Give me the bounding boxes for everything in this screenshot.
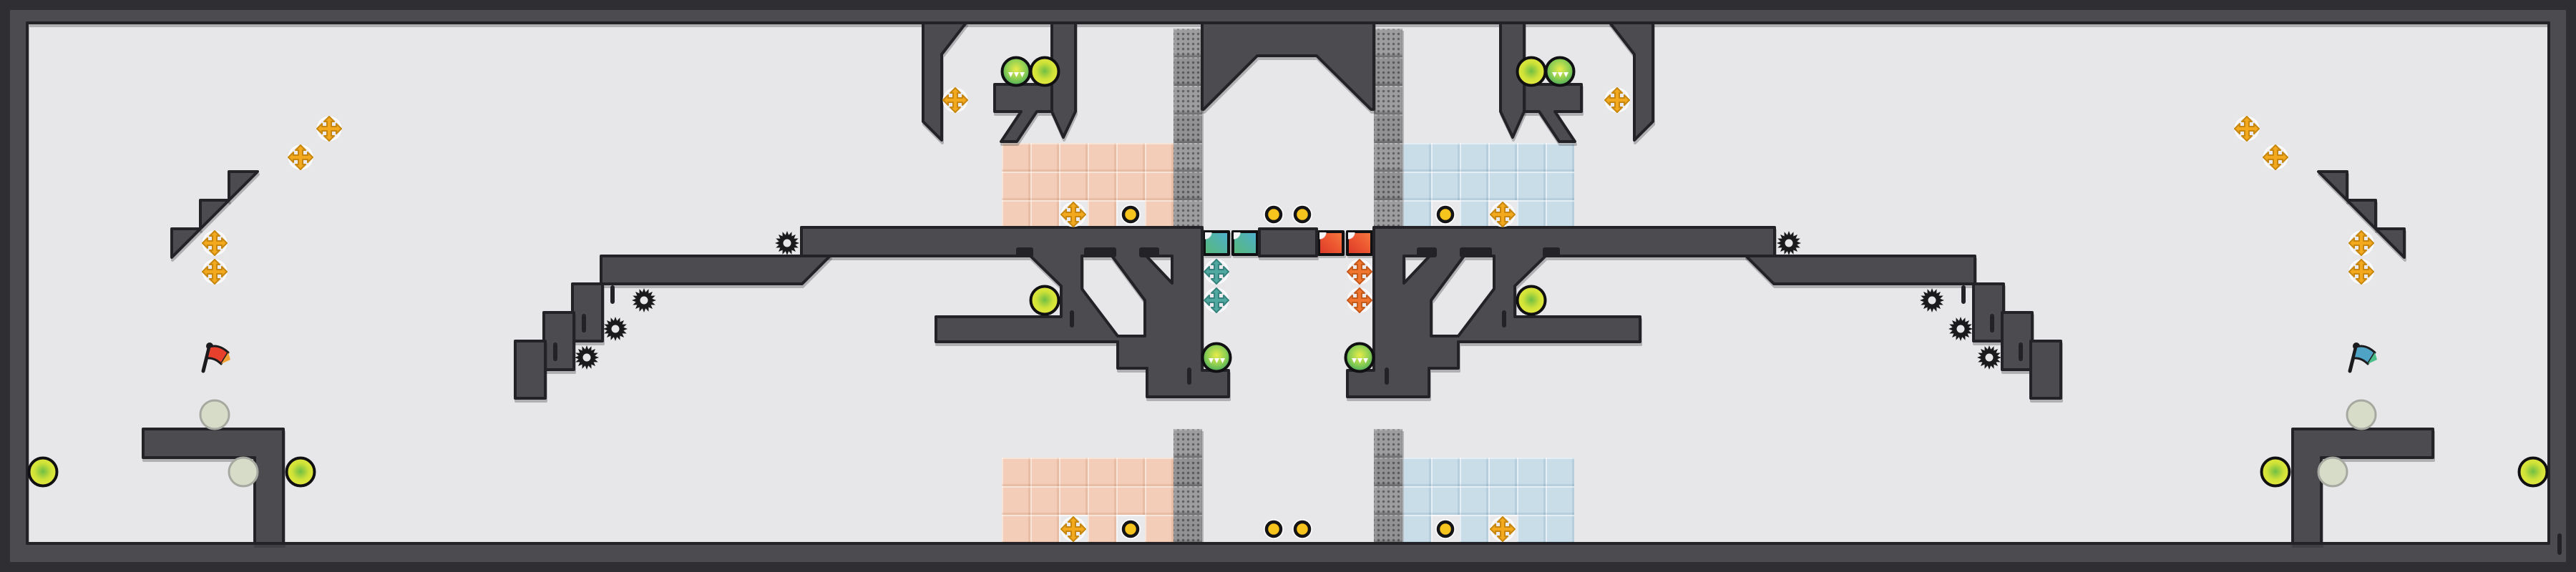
boost-neutral bbox=[203, 231, 227, 255]
leg-tick bbox=[1070, 310, 1074, 327]
spike bbox=[603, 317, 628, 341]
boost-neutral bbox=[2235, 117, 2259, 141]
corner-wall-right bbox=[2293, 429, 2433, 543]
underside-slot bbox=[1417, 247, 1437, 257]
spawn-marker bbox=[2318, 458, 2347, 486]
step-left-2 bbox=[544, 312, 574, 370]
boost-neutral bbox=[2349, 231, 2373, 255]
side-bar-left bbox=[601, 256, 830, 284]
step-tick bbox=[582, 314, 586, 332]
stair-triangle-left-3 bbox=[229, 172, 258, 200]
button bbox=[1121, 520, 1140, 538]
top-room-wall-right bbox=[1610, 23, 1653, 140]
powerup bbox=[1518, 58, 1546, 86]
outer-border bbox=[0, 0, 2576, 572]
spike bbox=[1777, 231, 1801, 255]
border-rim bbox=[5, 5, 2571, 567]
boost-neutral bbox=[1491, 517, 1515, 541]
underside-slot bbox=[1543, 247, 1560, 257]
step-tick bbox=[610, 285, 615, 304]
powerup-grip bbox=[1002, 58, 1030, 86]
powerup bbox=[1518, 287, 1546, 315]
button bbox=[1264, 205, 1283, 224]
border-tick bbox=[2557, 533, 2562, 555]
button bbox=[1436, 205, 1455, 224]
central-platform-right bbox=[1347, 227, 1775, 397]
spike bbox=[1920, 288, 1944, 312]
stair-triangle-left-2 bbox=[200, 200, 229, 229]
powerup bbox=[2519, 458, 2547, 486]
boost-neutral bbox=[317, 117, 341, 141]
spawn-marker bbox=[200, 400, 229, 429]
button bbox=[1293, 205, 1312, 224]
powerup bbox=[29, 458, 57, 486]
boost-neutral bbox=[2263, 145, 2288, 169]
spawn-marker bbox=[229, 458, 258, 486]
spike bbox=[775, 231, 799, 255]
boost-neutral bbox=[1491, 202, 1515, 227]
step-left-1 bbox=[572, 284, 602, 341]
spike bbox=[575, 345, 599, 370]
stair-triangle-right-2 bbox=[2347, 200, 2376, 229]
boost-red bbox=[1347, 288, 1372, 312]
leg-tick bbox=[1502, 310, 1506, 327]
stair-triangle-right-3 bbox=[2376, 229, 2404, 257]
leg-tick bbox=[1187, 368, 1191, 385]
room-ledge-left bbox=[995, 84, 1052, 142]
boost-neutral bbox=[288, 145, 313, 169]
button bbox=[1293, 520, 1312, 538]
powerup-grip bbox=[1346, 344, 1374, 372]
button bbox=[1436, 520, 1455, 538]
boost-blue bbox=[1204, 288, 1229, 312]
boost-neutral bbox=[1061, 517, 1085, 541]
game-map-viewport[interactable] bbox=[0, 0, 2576, 572]
leg-tick bbox=[1385, 368, 1389, 385]
powerup-grip bbox=[1546, 58, 1574, 86]
corner-wall-left bbox=[143, 429, 283, 543]
boost-neutral bbox=[1605, 88, 1629, 112]
spike bbox=[1948, 317, 1973, 341]
boost-red bbox=[1347, 260, 1372, 284]
step-tick bbox=[553, 342, 557, 361]
spike bbox=[632, 288, 656, 312]
boost-neutral bbox=[943, 88, 967, 112]
underside-slot bbox=[1139, 247, 1159, 257]
spawn-marker bbox=[2347, 400, 2376, 429]
powerup bbox=[1031, 58, 1059, 86]
top-funnel-block bbox=[1202, 23, 1374, 109]
boost-neutral bbox=[2349, 260, 2373, 284]
central-platform-middle bbox=[1259, 229, 1317, 256]
step-tick bbox=[1990, 314, 1994, 332]
boost-neutral bbox=[1061, 202, 1085, 227]
boost-neutral bbox=[203, 260, 227, 284]
step-left-3 bbox=[515, 341, 545, 398]
step-tick bbox=[2019, 342, 2023, 361]
room-ledge-right bbox=[1524, 84, 1581, 142]
walls-and-objects-canvas bbox=[0, 0, 2576, 572]
side-bar-right bbox=[1746, 256, 1975, 284]
boost-blue bbox=[1204, 260, 1229, 284]
step-tick bbox=[1961, 285, 1966, 304]
stair-triangle-right-1 bbox=[2318, 172, 2347, 200]
button bbox=[1121, 205, 1140, 224]
underside-slot bbox=[1016, 247, 1033, 257]
top-room-wall-left bbox=[923, 23, 966, 140]
flag-red bbox=[203, 342, 230, 371]
step-right-3 bbox=[2031, 341, 2061, 398]
powerup bbox=[1031, 287, 1059, 315]
underside-slot bbox=[1084, 247, 1116, 257]
powerup-grip bbox=[1203, 344, 1231, 372]
spike bbox=[1977, 345, 2001, 370]
button bbox=[1264, 520, 1283, 538]
stair-triangle-left-1 bbox=[172, 229, 200, 257]
central-platform-left bbox=[801, 227, 1229, 397]
step-right-2 bbox=[2002, 312, 2032, 370]
powerup bbox=[287, 458, 315, 486]
flag-blue bbox=[2350, 342, 2377, 371]
powerup bbox=[2262, 458, 2290, 486]
underside-slot bbox=[1460, 247, 1492, 257]
step-right-1 bbox=[1974, 284, 2004, 341]
